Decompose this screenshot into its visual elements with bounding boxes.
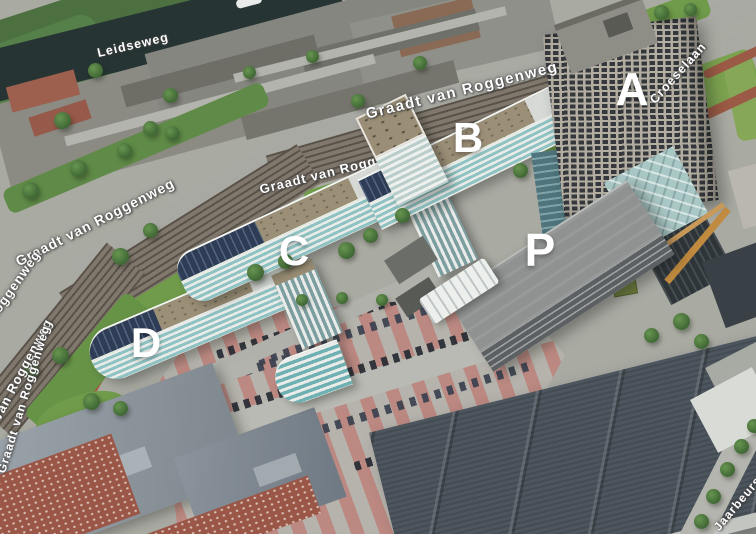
tree [654,5,669,20]
tree [296,294,308,306]
tree [338,242,355,259]
tree [684,3,697,16]
tree [247,264,264,281]
garage-side-face [480,234,674,372]
building-marker-b: B [453,117,483,159]
tree [694,514,709,529]
tree [52,347,69,364]
building-marker-c: C [279,230,309,272]
tree [143,223,158,238]
tree [747,419,756,433]
tree [395,208,410,223]
tree [113,401,128,416]
building-marker-a: A [615,66,648,112]
tree [22,182,39,199]
tree [673,313,690,330]
tree [706,489,721,504]
tree [694,334,709,349]
tree [644,328,659,343]
tree [720,462,735,477]
tree [70,160,87,177]
tree [112,248,129,265]
aerial-map: Graadt van Roggenweg [0,0,756,534]
tree [243,66,256,79]
building-right-edge [728,161,756,229]
tree [117,143,132,158]
tree [413,56,427,70]
tree [54,112,71,129]
tree [513,163,528,178]
tree [165,126,179,140]
building-marker-p: P [525,227,556,273]
building-marker-d: D [131,322,161,364]
tree [88,63,103,78]
tree [143,121,158,136]
tree [83,393,100,410]
tree [306,50,319,63]
tree [734,439,749,454]
tree [376,294,388,306]
tree [163,88,178,103]
tree [363,228,378,243]
tree [336,292,348,304]
